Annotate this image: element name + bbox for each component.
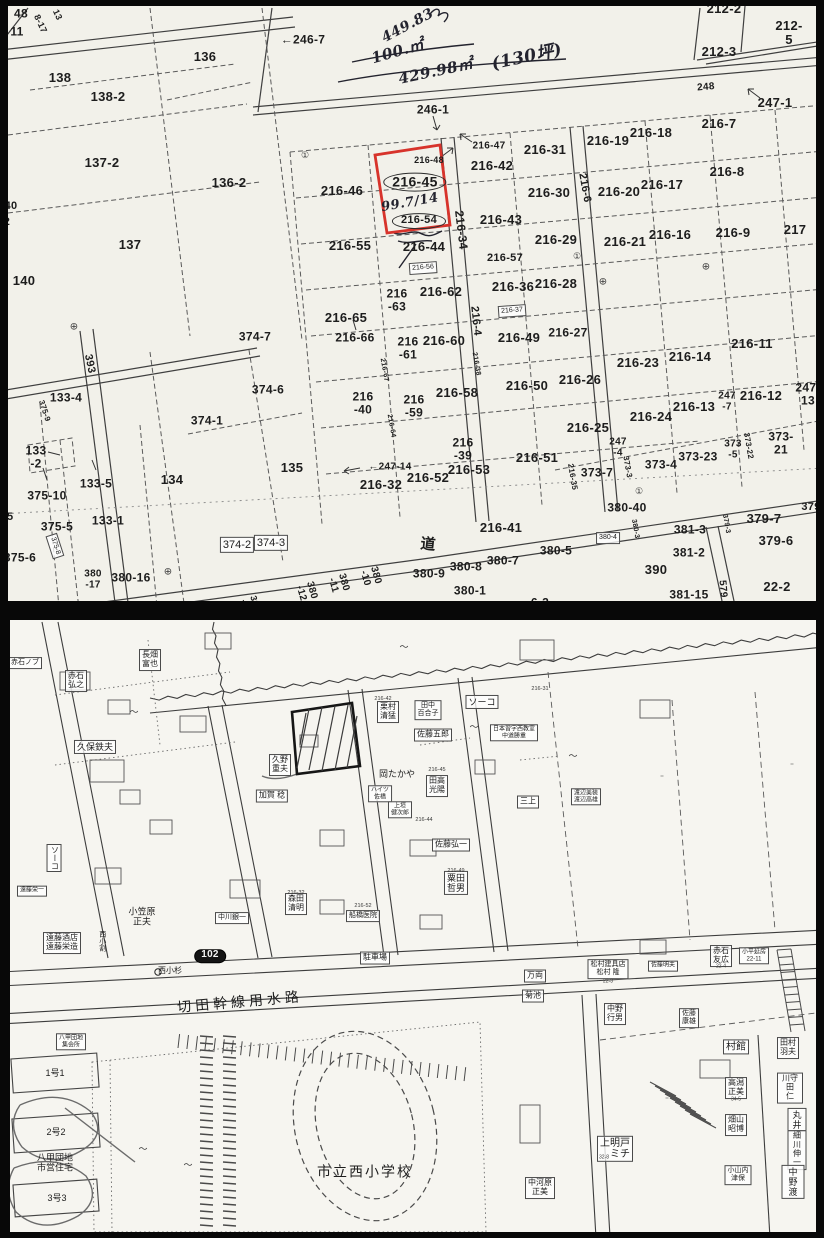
residential-map-lines [10, 620, 816, 1232]
highlight-parcel-outline [375, 145, 450, 233]
cadastral-map-lines [8, 6, 816, 601]
scanned-map-page: 48118-1713138136138-2137-2136-2137140402… [0, 0, 824, 1238]
residential-map-panel: 赤石ノブ赤石 弘之長畑 富也久保鉄夫久野 重夫加賀 稔栗村 清猛田中 百合子佐藤… [10, 620, 816, 1232]
cadastral-map-panel: 48118-1713138136138-2137-2136-2137140402… [8, 6, 816, 601]
subject-parcel-sketch [292, 703, 360, 774]
